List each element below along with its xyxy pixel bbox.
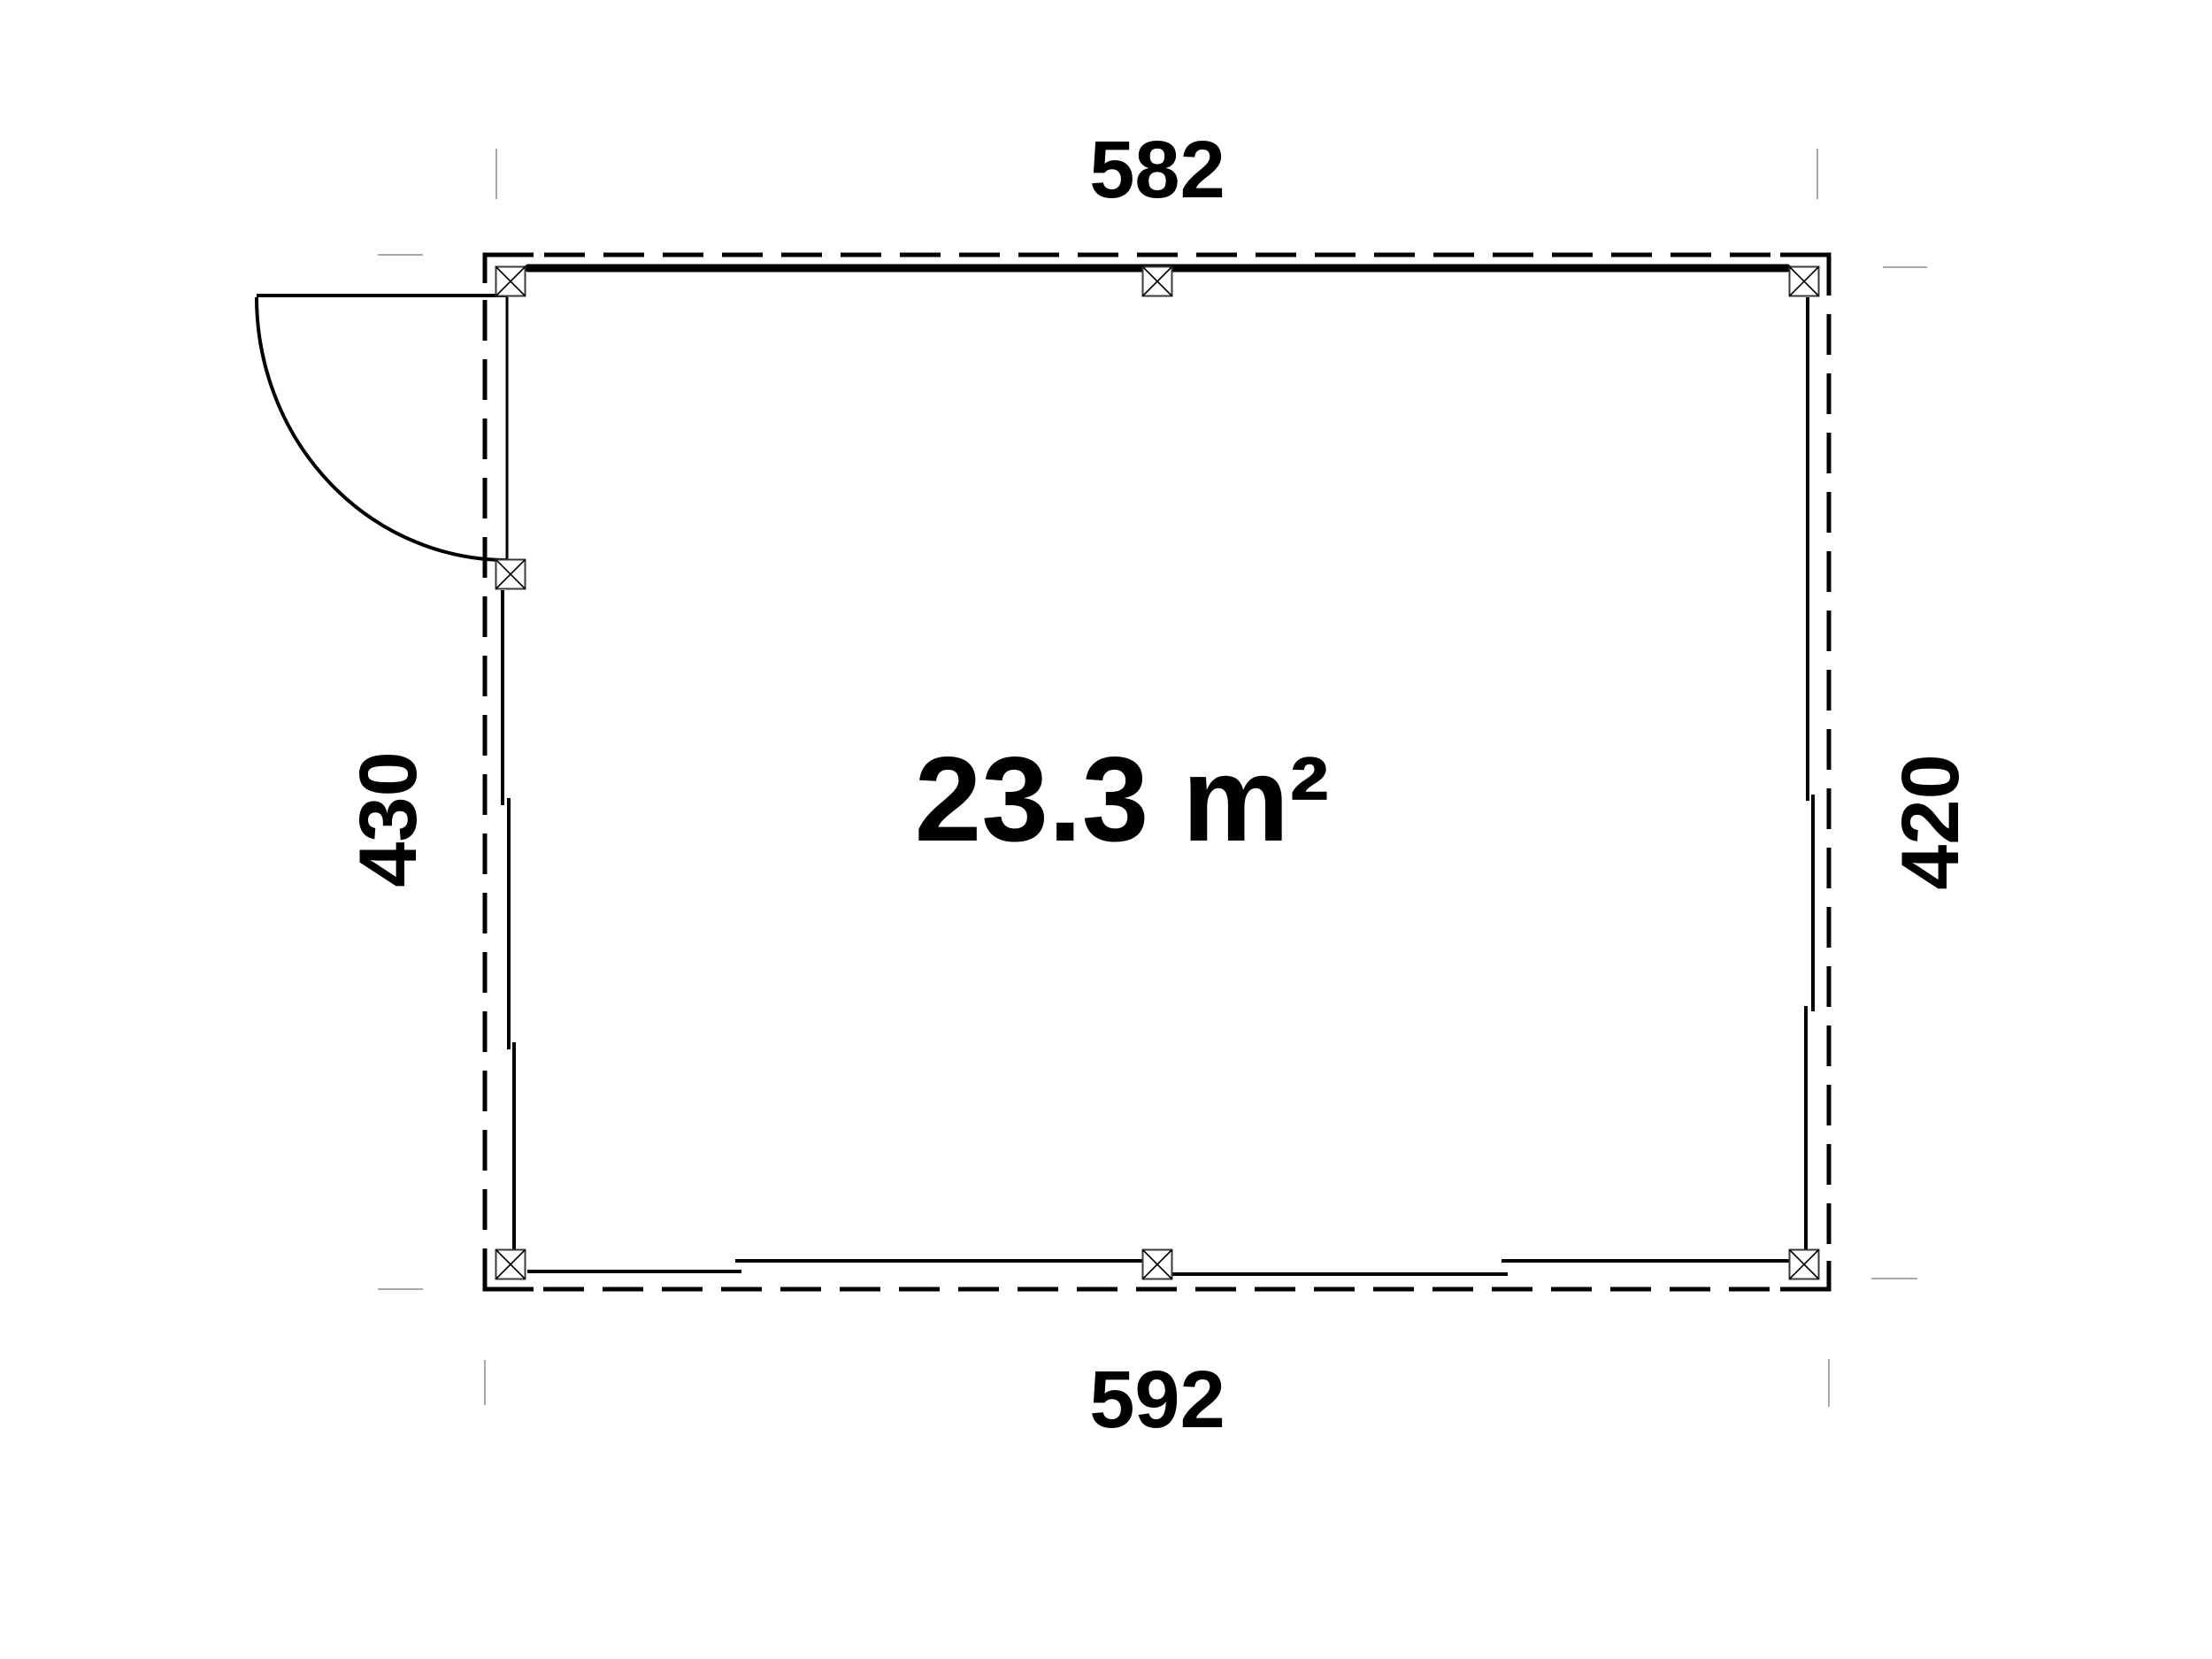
door-swing-arc <box>257 297 507 560</box>
floor-area-label: 23.3 m² <box>915 732 1330 866</box>
post-marker <box>496 560 526 589</box>
dimension-label-right: 420 <box>1886 754 1976 890</box>
dimension-labels: 582 592 430 420 23.3 m² <box>343 125 1976 1445</box>
dimension-label-top: 582 <box>1089 125 1225 215</box>
post-marker <box>496 267 526 296</box>
post-marker <box>1143 267 1172 296</box>
post-marker <box>1790 267 1819 296</box>
door-swing <box>257 296 508 560</box>
floor-plan-canvas: 582 592 430 420 23.3 m² <box>0 0 2212 1659</box>
post-marker <box>496 1250 526 1279</box>
post-marker <box>1790 1250 1819 1279</box>
dimension-label-bottom: 592 <box>1089 1355 1225 1445</box>
floor-plan-drawing: 582 592 430 420 23.3 m² <box>0 0 2212 1659</box>
post-marker <box>1143 1250 1172 1279</box>
dimension-label-left: 430 <box>343 751 434 887</box>
